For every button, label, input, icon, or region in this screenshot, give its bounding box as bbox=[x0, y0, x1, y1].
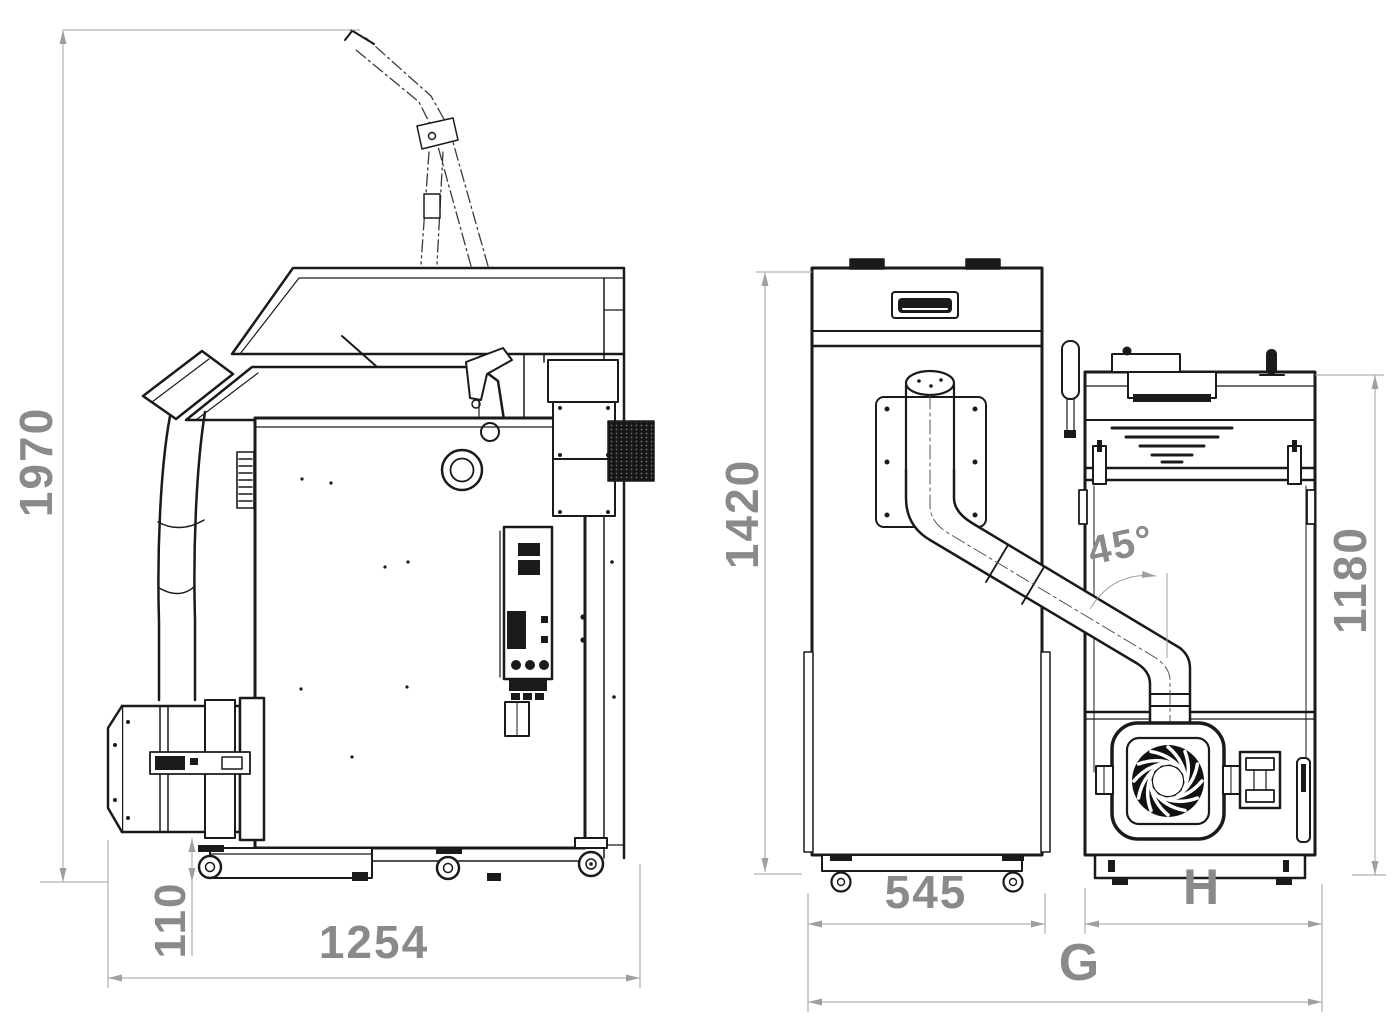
flue-bracket bbox=[417, 118, 458, 218]
label-overall-height: 1970 bbox=[10, 407, 62, 517]
side-view bbox=[108, 30, 654, 881]
flue-assembly bbox=[548, 360, 654, 516]
caster-middle bbox=[436, 847, 462, 879]
caster-rear bbox=[575, 838, 607, 876]
caster-front bbox=[198, 845, 224, 878]
fan-motor-box bbox=[1240, 752, 1280, 808]
top-fitting-box bbox=[1112, 347, 1180, 373]
burner-assembly bbox=[108, 698, 264, 840]
flue-mesh-grate bbox=[608, 421, 654, 481]
label-burner-clearance: 110 bbox=[146, 882, 195, 959]
panel-knob bbox=[511, 660, 521, 670]
top-canopy bbox=[232, 268, 624, 354]
side-base bbox=[210, 848, 585, 881]
label-boiler-height: 1180 bbox=[1324, 526, 1376, 634]
label-hopper-height: 1420 bbox=[716, 459, 768, 569]
label-overall-width: G bbox=[1059, 934, 1101, 992]
hopper-lid-handle bbox=[892, 292, 958, 318]
hopper-caster-right bbox=[1004, 873, 1023, 892]
label-hopper-width: 545 bbox=[885, 866, 968, 918]
feed-downtube bbox=[158, 412, 205, 700]
label-overall-depth: 1254 bbox=[319, 916, 429, 968]
label-front-width: H bbox=[1183, 859, 1221, 915]
side-louver-vent bbox=[237, 452, 254, 508]
panel-display bbox=[518, 543, 540, 556]
phantom-flue-pipe bbox=[356, 38, 488, 266]
flue-cap bbox=[345, 30, 374, 44]
flue-riser-lines bbox=[524, 354, 544, 418]
damper-lever bbox=[1062, 341, 1079, 438]
door-slot-handle bbox=[1297, 758, 1310, 842]
boiler-dimension-drawing: 1970 110 1254 1420 545 1180 45° H G bbox=[0, 0, 1400, 1035]
tube-inlet-flange bbox=[906, 371, 954, 395]
hopper-caster-left bbox=[832, 873, 851, 892]
technical-drawing-page: 1970 110 1254 1420 545 1180 45° H G bbox=[0, 0, 1400, 1035]
